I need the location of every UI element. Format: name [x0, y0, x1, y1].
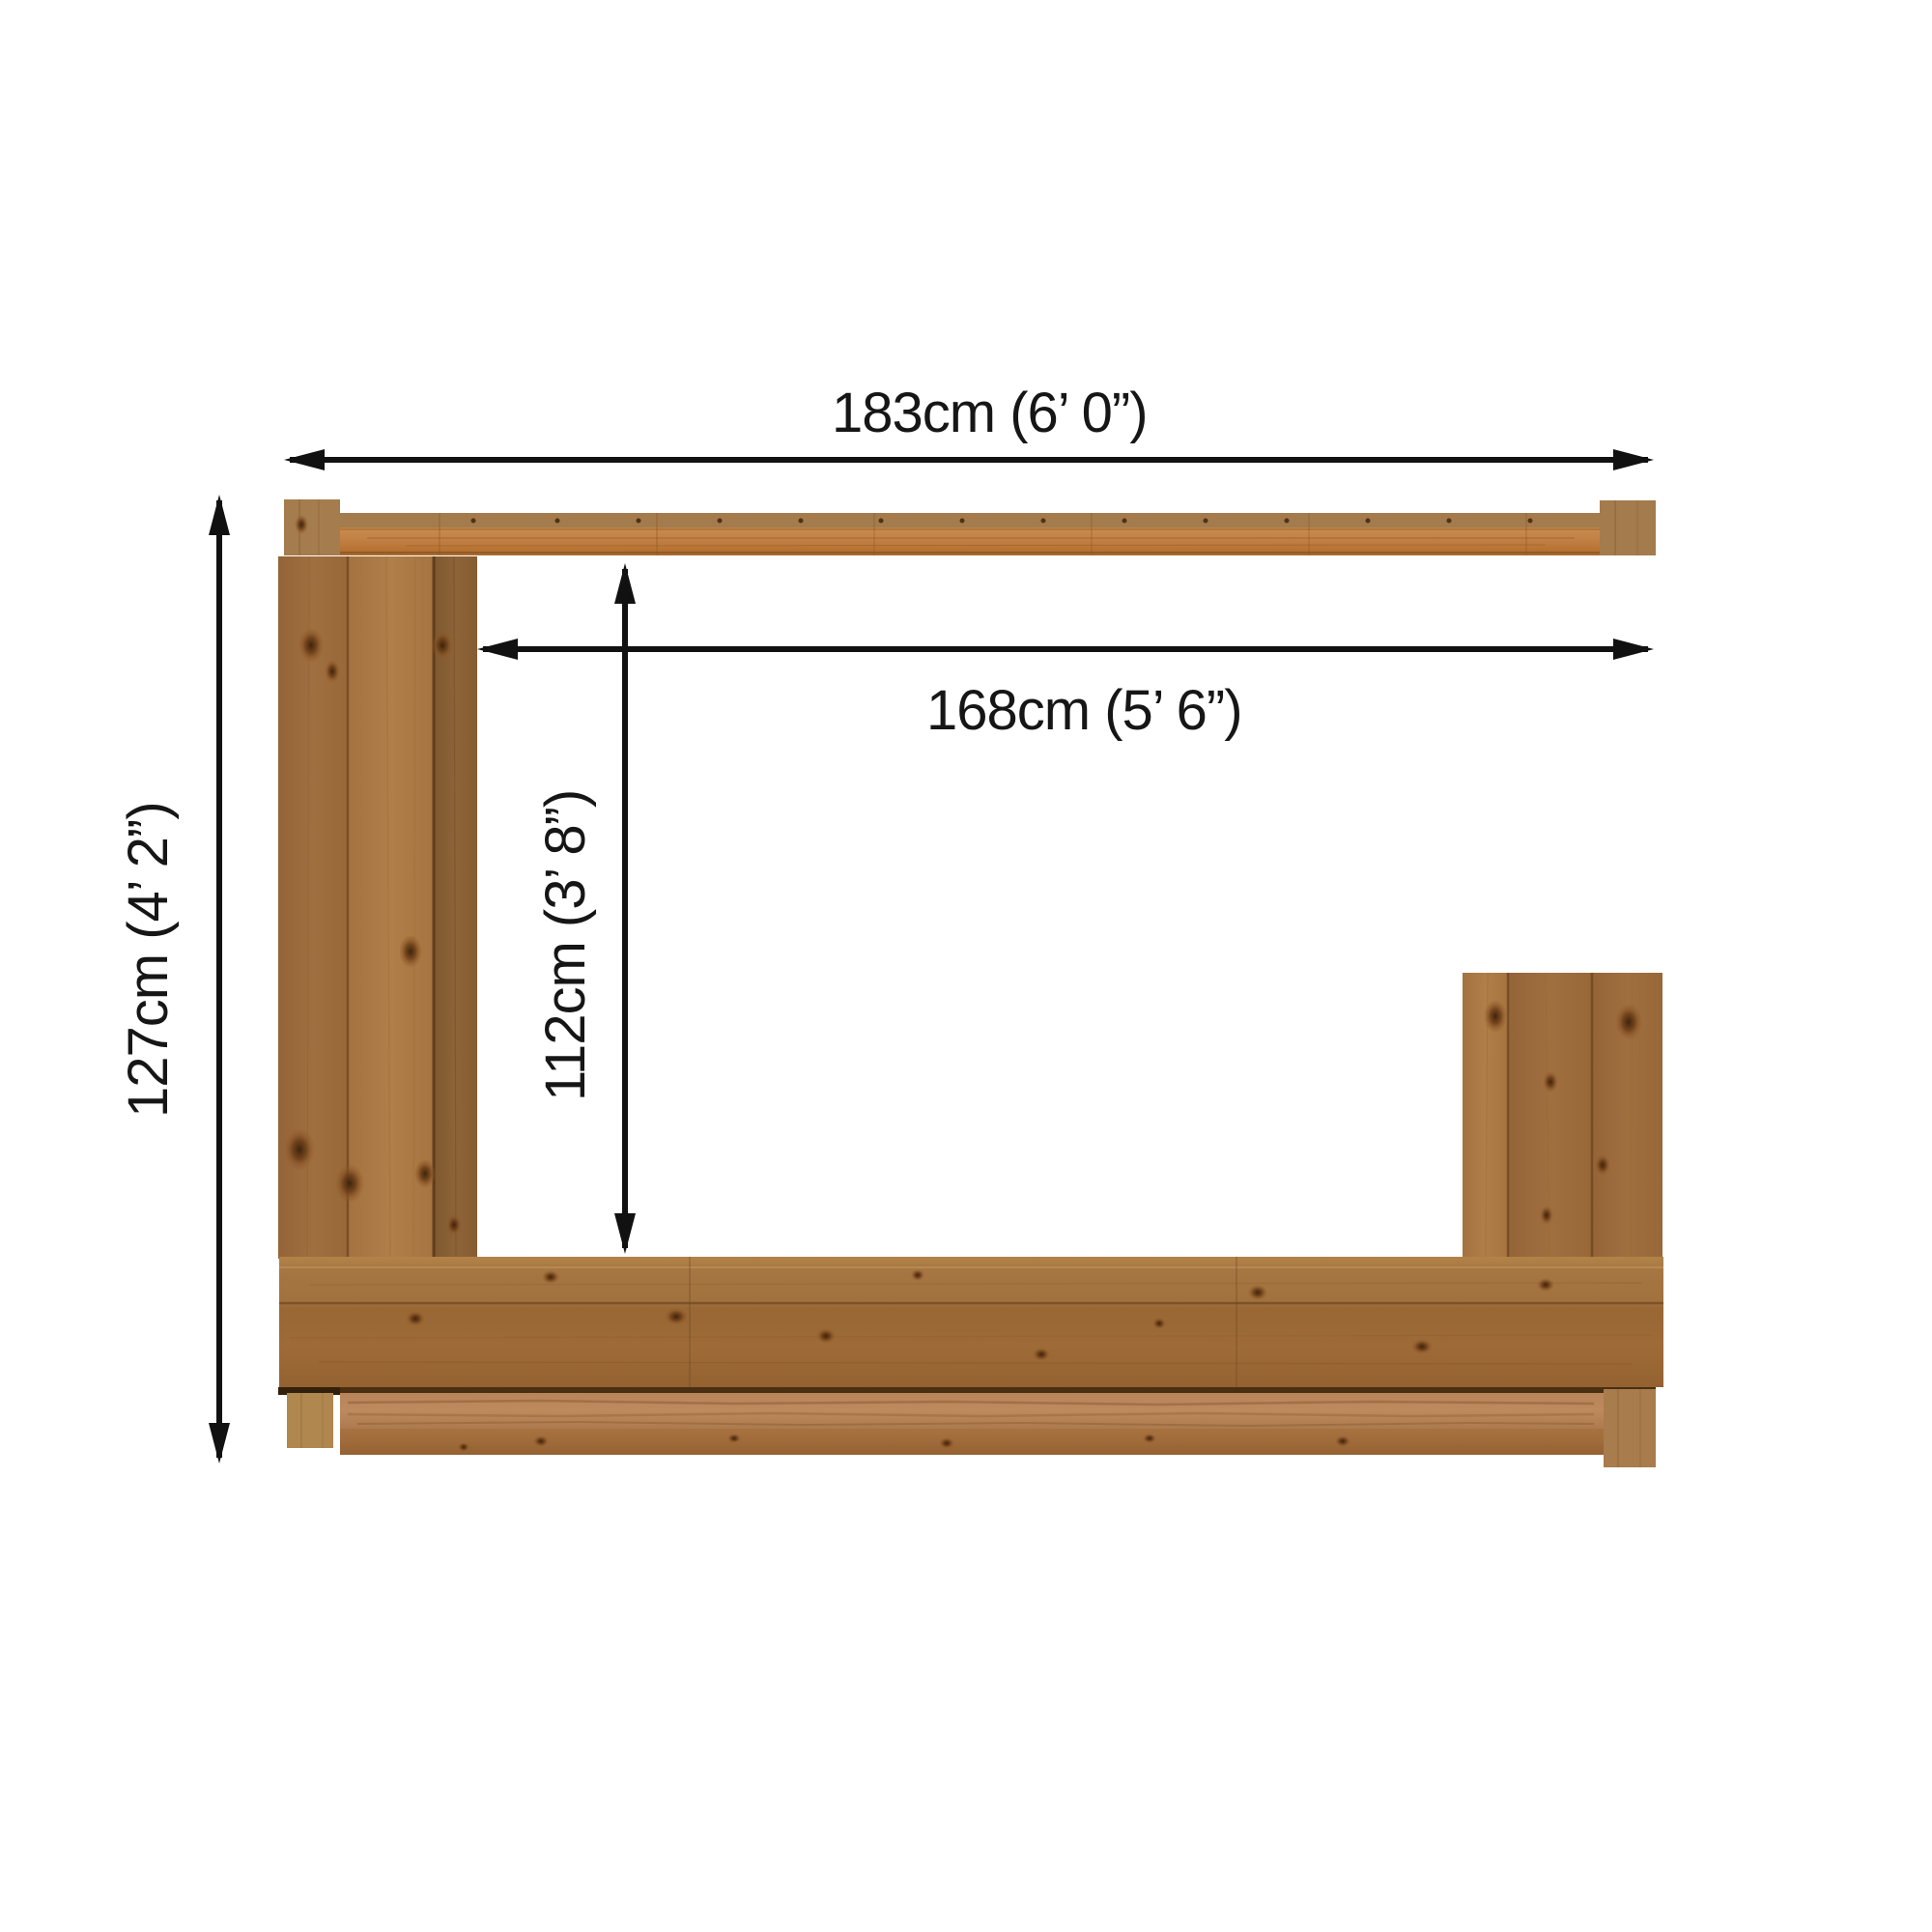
svg-text:183cm (6’ 0”): 183cm (6’ 0”) — [832, 382, 1148, 444]
svg-text:127cm (4’ 2”): 127cm (4’ 2”) — [117, 802, 180, 1118]
svg-text:168cm (5’ 6”): 168cm (5’ 6”) — [926, 679, 1242, 742]
svg-text:112cm (3’ 8”): 112cm (3’ 8”) — [534, 790, 597, 1101]
